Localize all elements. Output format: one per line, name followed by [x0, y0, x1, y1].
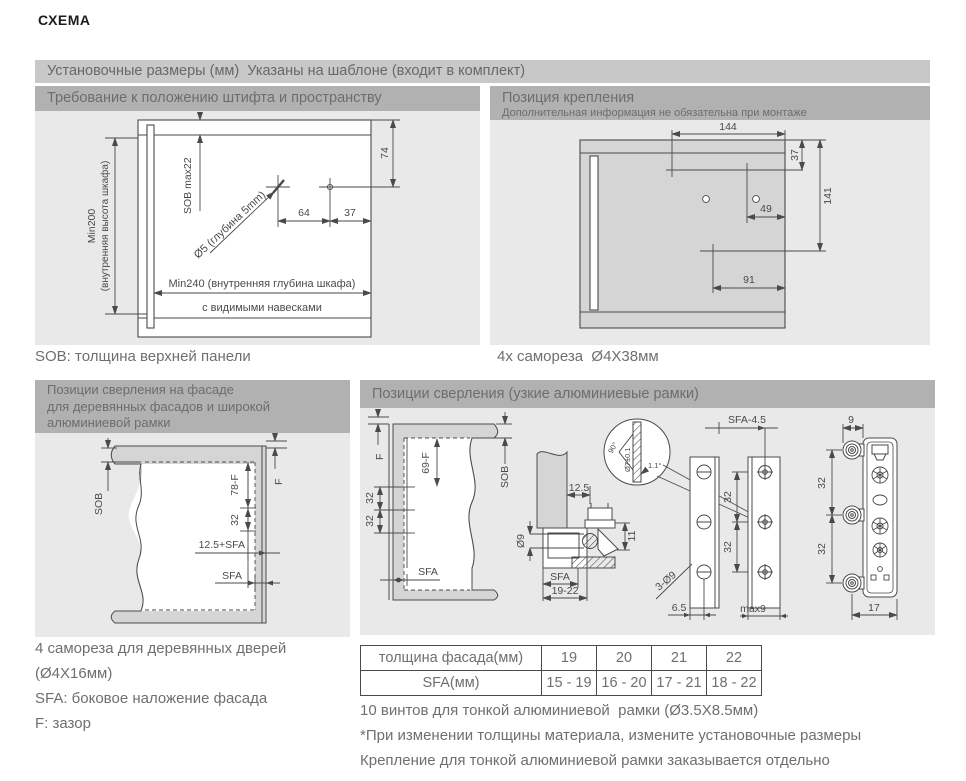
dim-17: 17 — [868, 602, 880, 614]
dim-d9-hole: Ø9 — [515, 534, 527, 548]
dim-32: 32 — [229, 514, 241, 526]
table-cell: 20 — [597, 646, 652, 671]
schema-page: СХЕМА Установочные размеры (мм) Указаны … — [0, 0, 966, 781]
dim-min200: Min200 — [86, 209, 98, 244]
dim-sfa: SFA — [222, 570, 242, 582]
mount-position-panel: Позиция крепления Дополнительная информа… — [490, 86, 930, 345]
dim-141: 141 — [822, 187, 834, 205]
dim-125: 12.5 — [569, 482, 590, 494]
dim-125sfa: 12.5+SFA — [199, 539, 245, 551]
table-header-sfa: SFA(мм) — [361, 671, 542, 696]
table-row: SFA(мм) 15 - 19 16 - 20 17 - 21 18 - 22 — [361, 671, 762, 696]
dim-32-c: 32 — [722, 491, 734, 503]
dim-91: 91 — [743, 274, 755, 286]
dim-69f: 69-F — [420, 452, 432, 474]
dim-32-f: 32 — [816, 543, 828, 555]
dim-sfa-a: SFA — [418, 566, 438, 578]
wood-panel-title-2: для деревянных фасадов и широкой — [47, 399, 350, 416]
dim-min240: Min240 (внутренняя глубина шкафа) — [169, 278, 356, 290]
mount-panel-header: Позиция крепления Дополнительная информа… — [490, 86, 930, 120]
note-order: Крепление для тонкой алюминиевой рамки з… — [360, 752, 966, 770]
alu-notes: 10 винтов для тонкой алюминиевой рамки (… — [360, 702, 966, 777]
dim-37: 37 — [789, 149, 801, 161]
dim-f: F — [273, 479, 285, 485]
wood-caption-2: (Ø4X16мм) — [35, 665, 365, 683]
mount-panel-body: 144 37 141 49 91 — [490, 120, 930, 345]
note-thickness: *При изменении толщины материала, измени… — [360, 727, 966, 745]
alu-panel-body: F 69-F 32 32 SOB SFA 12.5 Ø9 11 SFA 19-2… — [360, 408, 935, 635]
wood-panel-title-3: алюминиевой рамки — [47, 415, 350, 432]
dim-144: 144 — [719, 121, 737, 133]
mount-panel-subtitle: Дополнительная информация не обязательна… — [502, 107, 930, 120]
alu-drill-diagram: F 69-F 32 32 SOB SFA 12.5 Ø9 11 SFA 19-2… — [360, 408, 935, 635]
dim-11: 11 — [626, 530, 638, 541]
page-title: СХЕМА — [38, 12, 91, 28]
table-cell: 17 - 21 — [652, 671, 707, 696]
dim-19-22: 19-22 — [552, 585, 579, 597]
dim-sob: SOB — [93, 493, 105, 515]
dim-d7-tol: Ø7±0.1 — [623, 447, 632, 472]
alu-panel-header: Позиции сверления (узкие алюминиевые рам… — [360, 380, 935, 408]
table-cell: 16 - 20 — [597, 671, 652, 696]
pin-diagram: SOB max22 Min200 (внутренняя высота шкаф… — [35, 111, 480, 345]
alu-frames-panel: Позиции сверления (узкие алюминиевые рам… — [360, 380, 935, 635]
dim-f: F — [374, 454, 386, 460]
dim-32-e: 32 — [816, 477, 828, 489]
dim-sob: SOB — [499, 466, 511, 488]
install-sizes-banner: Установочные размеры (мм) Указаны на шаб… — [35, 60, 930, 83]
label-visible-hinges: с видимыми навесками — [202, 302, 322, 314]
dim-32-b: 32 — [364, 515, 376, 527]
pin-panel-body: SOB max22 Min200 (внутренняя высота шкаф… — [35, 111, 480, 345]
dim-37: 37 — [344, 207, 356, 219]
table-header-thickness: толщина фасада(мм) — [361, 646, 542, 671]
dim-64: 64 — [298, 207, 310, 219]
table-row: толщина фасада(мм) 19 20 21 22 — [361, 646, 762, 671]
dim-74: 74 — [379, 147, 391, 159]
wood-facade-panel: Позиции сверления на фасаде для деревянн… — [35, 380, 350, 637]
pin-requirements-panel: Требование к положению штифта и простран… — [35, 86, 480, 345]
mount-diagram: 144 37 141 49 91 — [490, 120, 930, 345]
dim-min200-sub: (внутренняя высота шкафа) — [99, 161, 111, 292]
wood-panel-title-1: Позиции сверления на фасаде — [47, 382, 350, 399]
dim-78f: 78-F — [229, 474, 241, 496]
facade-thickness-table: толщина фасада(мм) 19 20 21 22 SFA(мм) 1… — [360, 645, 762, 696]
pin-panel-title: Требование к положению штифта и простран… — [47, 89, 480, 107]
dim-9: 9 — [848, 414, 854, 426]
screws-caption: 4х самореза Ø4X38мм — [497, 348, 659, 365]
dim-11deg: 1.1° — [648, 461, 661, 470]
dim-32-a: 32 — [364, 492, 376, 504]
table-cell: 21 — [652, 646, 707, 671]
wood-panel-body: SOB F 78-F 32 12.5+SFA SFA — [35, 433, 350, 637]
wood-captions: 4 самореза для деревянных дверей (Ø4X16м… — [35, 640, 365, 740]
dim-sfa-b: SFA — [550, 571, 570, 583]
wood-caption-1: 4 самореза для деревянных дверей — [35, 640, 365, 658]
wood-caption-4: F: зазор — [35, 715, 365, 733]
table-cell: 19 — [542, 646, 597, 671]
alu-panel-title: Позиции сверления (узкие алюминиевые рам… — [372, 385, 935, 403]
table-cell: 18 - 22 — [707, 671, 762, 696]
wood-drill-diagram: SOB F 78-F 32 12.5+SFA SFA — [35, 433, 350, 637]
table-cell: 15 - 19 — [542, 671, 597, 696]
sob-caption: SOB: толщина верхней панели — [35, 348, 251, 365]
mount-panel-title: Позиция крепления — [502, 89, 930, 107]
dim-sfa45: SFA-4.5 — [728, 414, 766, 426]
dim-max9: max9 — [740, 603, 766, 615]
table-cell: 22 — [707, 646, 762, 671]
dim-49: 49 — [760, 203, 772, 215]
dim-sob-max22: SOB max22 — [182, 157, 194, 214]
wood-panel-header: Позиции сверления на фасаде для деревянн… — [35, 380, 350, 433]
wood-caption-3: SFA: боковое наложение фасада — [35, 690, 365, 708]
dim-6-5: 6.5 — [672, 602, 687, 614]
note-screws: 10 винтов для тонкой алюминиевой рамки (… — [360, 702, 966, 720]
dim-32-d: 32 — [722, 541, 734, 553]
pin-panel-header: Требование к положению штифта и простран… — [35, 86, 480, 111]
